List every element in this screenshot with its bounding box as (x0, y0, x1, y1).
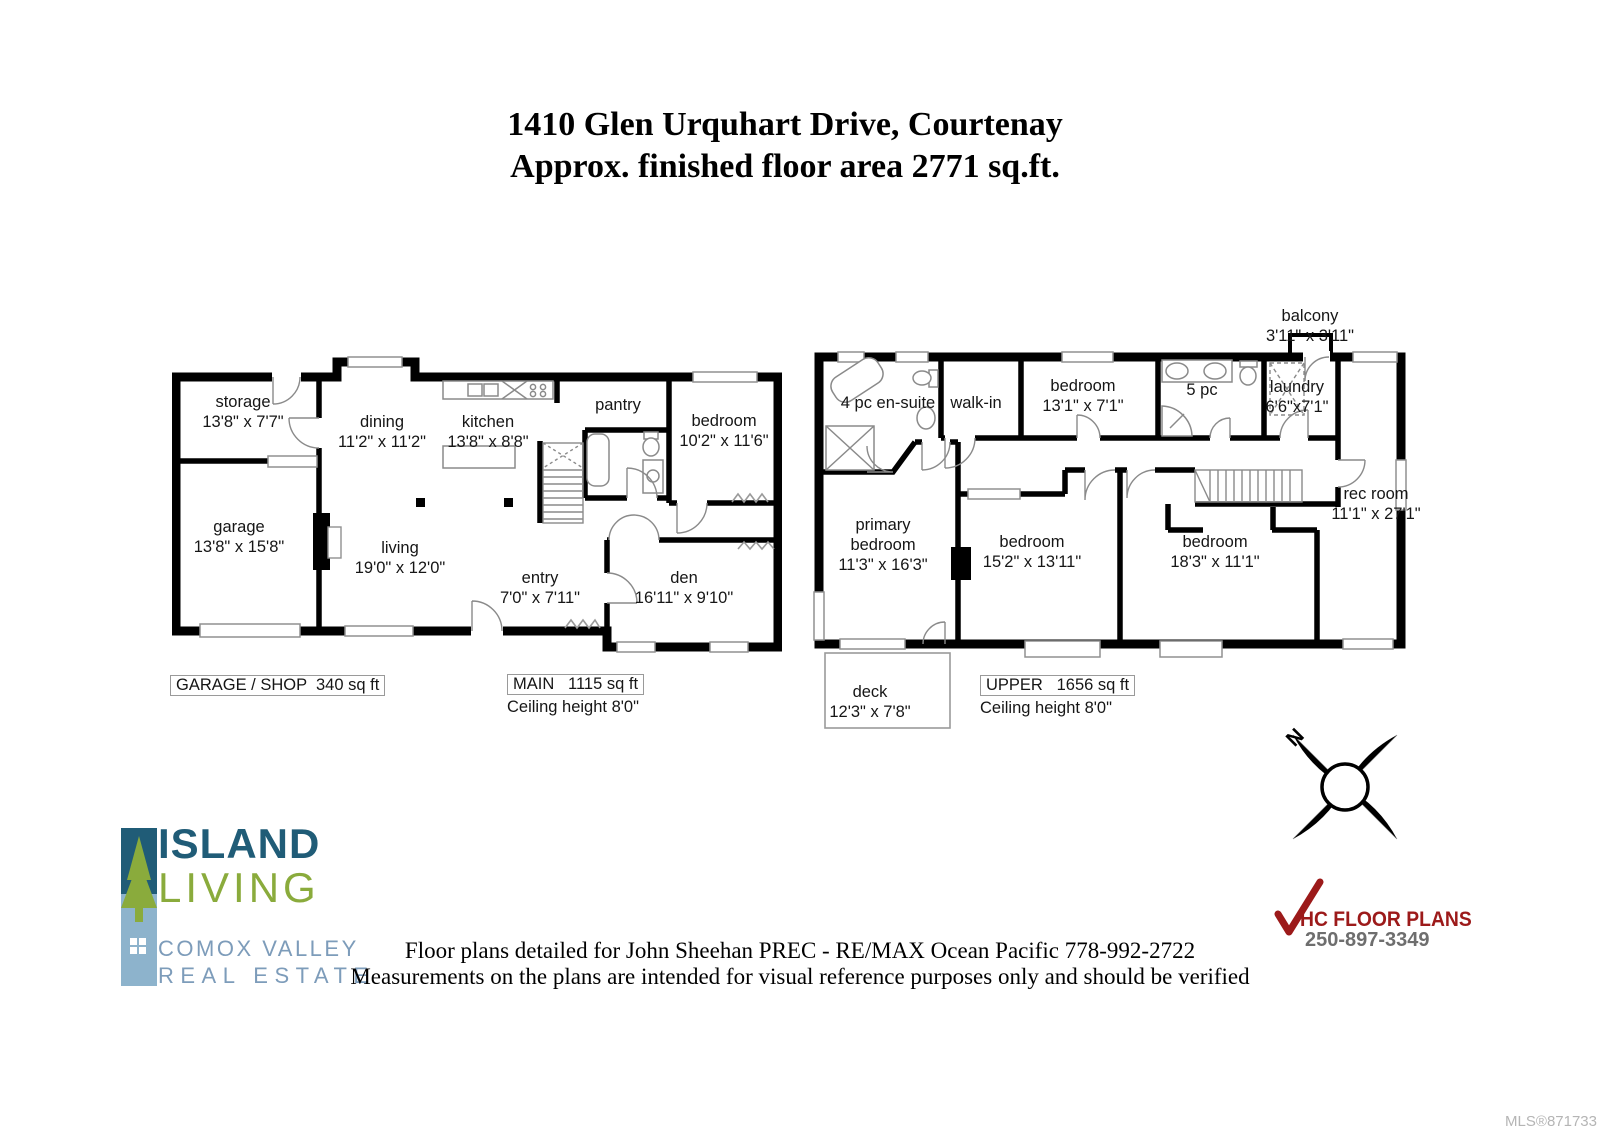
room-label-den: den16'11" x 9'10" (635, 568, 733, 608)
disclaimer-line1: Floor plans detailed for John Sheehan PR… (160, 938, 1440, 964)
room-label-ensuite: 4 pc en-suite (841, 393, 935, 413)
post (504, 498, 513, 507)
room-label-walkin: walk-in (950, 393, 1001, 413)
room-label-living: living19'0" x 12'0" (355, 538, 446, 578)
hc-floor-plans-phone: 250-897-3349 (1305, 929, 1430, 952)
room-label-deck: deck12'3" x 7'8" (829, 682, 910, 722)
main-ceiling-label: Ceiling height 8'0" (507, 698, 639, 717)
island-living-line1: ISLAND (158, 820, 320, 868)
room-label-primary: primary bedroom11'3" x 16'3" (837, 515, 929, 575)
island-living-line2: LIVING (158, 864, 320, 912)
mls-number: MLS®871733 (1440, 1113, 1597, 1130)
island-living-banner-icon (118, 826, 160, 988)
floor-plan-sheet: 1410 Glen Urquhart Drive, Courtenay Appr… (0, 0, 1600, 1130)
room-label-garage: garage13'8" x 15'8" (194, 517, 285, 557)
room-label-bedroom3: bedroom18'3" x 11'1" (1170, 532, 1259, 572)
room-label-recroom: rec room11'1" x 27'1" (1331, 484, 1420, 524)
main-area-label: MAIN 1115 sq ft (507, 674, 644, 695)
disclaimer-line2: Measurements on the plans are intended f… (160, 964, 1440, 990)
room-label-storage: storage13'8" x 7'7" (202, 392, 283, 432)
room-label-dining: dining11'2" x 11'2" (338, 412, 426, 452)
main-floor-plan: storage13'8" x 7'7" garage13'8" x 15'8" … (172, 348, 782, 660)
upper-ceiling-label: Ceiling height 8'0" (980, 699, 1112, 718)
stairs (1195, 470, 1302, 502)
room-label-kitchen: kitchen13'8" x 8'8" (447, 412, 528, 452)
disclaimer: Floor plans detailed for John Sheehan PR… (160, 938, 1440, 990)
chimney (951, 547, 971, 580)
kitchen-counter (443, 381, 553, 399)
room-label-bedroom: bedroom10'2" x 11'6" (679, 411, 768, 451)
upper-area-label: UPPER 1656 sq ft (980, 675, 1135, 696)
stairs (543, 443, 583, 523)
garage-area-label: GARAGE / SHOP 340 sq ft (170, 675, 385, 696)
address-line: 1410 Glen Urquhart Drive, Courtenay (0, 104, 1570, 146)
room-label-bedroom1: bedroom13'1" x 7'1" (1042, 376, 1123, 416)
room-label-pantry: pantry (595, 395, 641, 415)
page-title: 1410 Glen Urquhart Drive, Courtenay Appr… (0, 104, 1570, 188)
room-label-5pc: 5 pc (1186, 380, 1217, 400)
upper-floor-plan: balcony3'11" x 3'11" 4 pc en-suite walk-… (810, 300, 1410, 732)
room-label-entry: entry7'0" x 7'11" (500, 568, 580, 608)
post (416, 498, 425, 507)
room-label-balcony: balcony3'11" x 3'11" (1266, 306, 1354, 346)
room-label-bedroom2: bedroom15'2" x 13'11" (983, 532, 1081, 572)
room-label-laundry: laundry6'6"x7'1" (1266, 377, 1329, 417)
area-line: Approx. finished floor area 2771 sq.ft. (0, 146, 1570, 188)
bathroom-fixtures (587, 432, 663, 493)
